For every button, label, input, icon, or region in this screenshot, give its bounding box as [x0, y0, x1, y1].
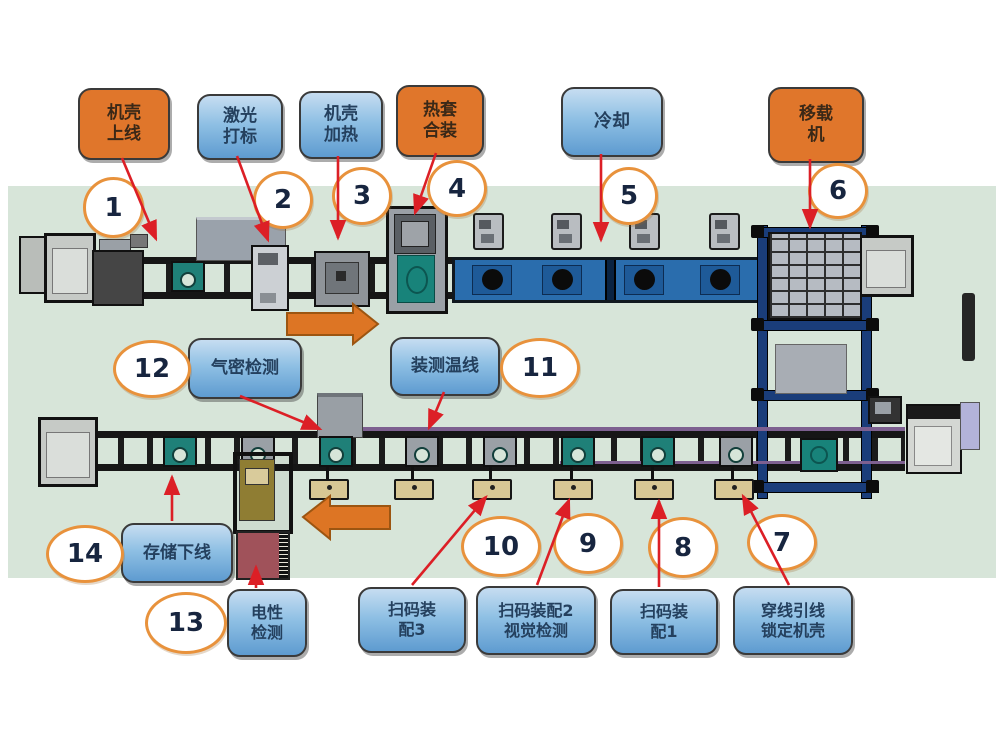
production-line-diagram: 机壳 上线 激光 打标 机壳 加热 热套 合装 冷却 移载 机 气密检测 装测温… [0, 0, 1000, 750]
bottom-conveyor-rail-accent [360, 427, 905, 431]
equipment-box-top-left [19, 236, 47, 294]
station-number-1: 1 [83, 177, 144, 238]
transfer-gantry-frame [753, 320, 879, 331]
housing-heating-machine [314, 251, 370, 307]
station-number-2: 2 [253, 171, 313, 229]
station-number-13: 13 [145, 592, 227, 654]
station-number-12: 12 [113, 340, 191, 398]
pallet-fixture [483, 436, 517, 467]
callout-label-11: 装测温线 [390, 337, 500, 396]
pallet-fixture [319, 436, 353, 467]
transfer-gantry-frame [757, 225, 768, 499]
transfer-gantry-frame [753, 482, 879, 493]
sensor-box [473, 213, 504, 250]
pendant-fixture [714, 479, 754, 500]
callout-label-4: 热套 合装 [396, 85, 484, 157]
housing-loading-machine [92, 250, 144, 306]
pallet-fixture [561, 436, 595, 467]
end-of-line-unit [868, 396, 902, 424]
pallet-fixture [163, 436, 197, 467]
pendant-fixture [309, 479, 349, 500]
station-number-9: 9 [553, 513, 623, 574]
station-number-14: 14 [46, 525, 124, 583]
callout-label-5: 冷却 [561, 87, 663, 157]
pallet-fixture [719, 436, 753, 467]
station-number-5: 5 [600, 167, 658, 225]
station-number-11: 11 [500, 338, 580, 398]
callout-label-12: 气密检测 [188, 338, 302, 399]
laser-marking-machine [251, 245, 289, 311]
teal-lift-fixture [800, 438, 838, 472]
pendant-fixture [472, 479, 512, 500]
callout-label-13: 电性 检测 [227, 589, 307, 657]
station-number-10: 10 [461, 516, 541, 577]
callout-label-6: 移载 机 [768, 87, 864, 163]
sensor-box [551, 213, 582, 250]
pendant-fixture [553, 479, 593, 500]
side-panel-right [962, 293, 975, 361]
sensor-box [709, 213, 740, 250]
pendant-fixture [634, 479, 674, 500]
bottom-right-panel [960, 402, 980, 450]
pallet-fixture [641, 436, 675, 467]
callout-label-8: 扫码装 配1 [610, 589, 718, 655]
airtight-test-machine [317, 393, 363, 438]
control-cabinet-top-left [44, 233, 96, 303]
callout-label-14: 存储下线 [121, 523, 233, 583]
pendant-fixture [394, 479, 434, 500]
station-number-8: 8 [648, 517, 718, 578]
station-number-7: 7 [747, 514, 817, 571]
electrical-test-station-frame [233, 452, 293, 534]
callout-label-7: 穿线引线 锁定机壳 [733, 586, 853, 655]
callout-label-1: 机壳 上线 [78, 88, 170, 160]
station-number-3: 3 [332, 167, 392, 225]
bottom-right-cabinet [906, 404, 962, 474]
housing-loading-sensor [130, 234, 148, 248]
callout-label-3: 机壳 加热 [299, 91, 383, 159]
cooling-conveyor-section [452, 257, 768, 303]
transfer-machine [768, 232, 862, 320]
electrical-test-control-box [236, 531, 290, 580]
station-number-4: 4 [427, 160, 487, 217]
gantry-side-cabinet [858, 235, 914, 297]
callout-label-2: 激光 打标 [197, 94, 283, 160]
callout-label-10: 扫码装 配3 [358, 587, 466, 653]
station-number-6: 6 [808, 163, 868, 219]
pallet-fixture [171, 261, 205, 292]
callout-label-9: 扫码装配2 视觉检测 [476, 586, 596, 655]
heat-shrink-assembly-machine [386, 206, 448, 314]
gantry-storage-box [775, 344, 847, 394]
pallet-fixture [405, 436, 439, 467]
storage-cabinet-bottom-left [38, 417, 98, 487]
